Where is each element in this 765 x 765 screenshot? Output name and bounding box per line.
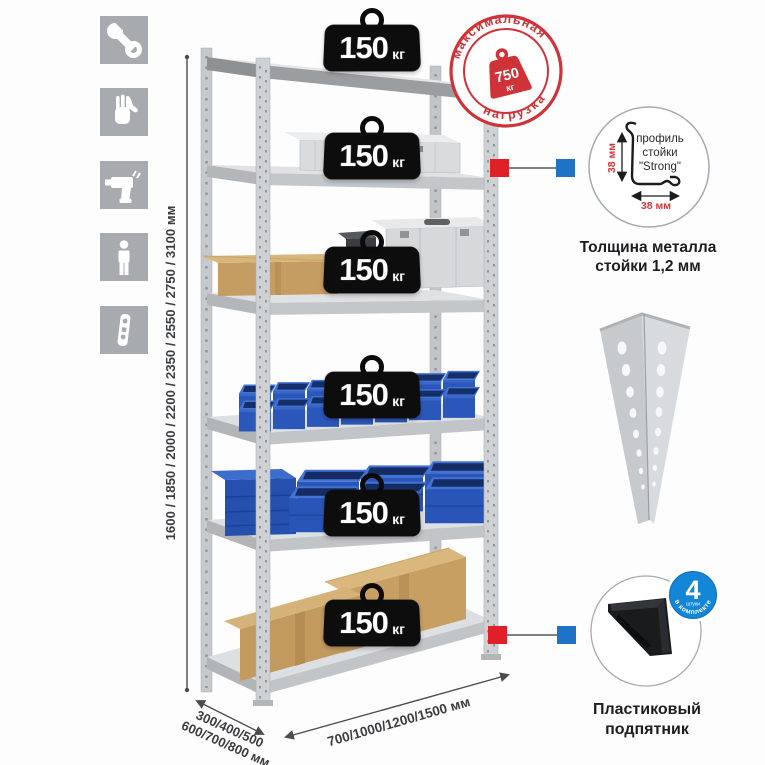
profile-label-3: "Strong" [639,161,681,173]
cardboard-box-shelf3 [203,254,338,296]
shelving-infographic: { "colors": { "accent_red": "#cf3338", "… [0,0,765,765]
shelf-load-badge-4: 150кг [324,355,420,418]
weight-handle-icon [360,473,384,497]
red-marker-bottom [488,626,507,644]
foot-badge-unit: штуки [686,602,700,608]
upright-angle-image [592,300,702,530]
max-load-stamp: максимальная нагрузка 750 кг [446,11,566,131]
blue-marker-top [556,159,575,177]
shelf-load-badge-5: 150кг [324,473,420,536]
shelf-load-badge-3: 150кг [324,230,420,293]
callout-connector-top [490,159,575,177]
callout-connector-bottom [488,626,576,644]
red-marker-top [490,159,509,177]
width-dimension: 700/1000/1200/1500 мм [286,675,508,749]
depth-dimension: 300/400/500 600/700/800 мм [179,701,272,765]
height-dimension-label: 1600 / 1850 / 2000 / 2200 / 2350 / 2550 … [163,206,178,541]
shelf-load-badge-6: 150кг [324,583,420,646]
weight-handle-icon [360,116,384,140]
weight-handle-icon [360,583,384,607]
weight-handle-icon [360,230,384,254]
shelf-load-badge-1: 150кг [324,8,420,71]
profile-label-2: стойки [642,147,677,159]
weight-handle-icon [360,355,384,379]
profile-label-1: профиль [636,133,684,145]
profile-dim-horizontal: 38 мм [641,200,671,212]
foot-badge-count: 4 [685,575,700,605]
weight-handle-icon [360,8,384,32]
profile-dim-vertical: 38 мм [606,143,618,173]
blue-marker-bottom [557,626,576,644]
profile-callout: 38 мм 38 мм профиль стойки "Strong" [586,104,712,230]
shelf-load-badge-2: 150кг [324,116,420,179]
height-dimension: 1600 / 1850 / 2000 / 2200 / 2350 / 2550 … [163,55,189,692]
width-dimension-label: 700/1000/1200/1500 мм [326,694,472,749]
foot-count-badge: 4 штуки в комплекте [664,566,722,624]
